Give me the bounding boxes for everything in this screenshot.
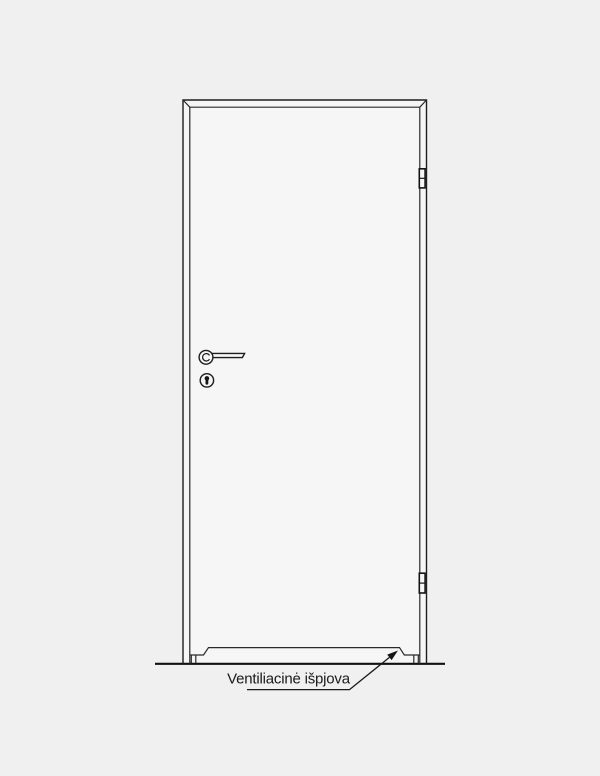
hinge-top [419, 169, 425, 188]
keyhole [200, 374, 213, 387]
hinge-bottom [419, 573, 425, 593]
ventilation-label: Ventiliacinė išpjova [227, 670, 351, 687]
handle-rosette [199, 350, 213, 364]
door-drawing-canvas: Ventiliacinė išpjova [0, 0, 600, 776]
door-elevation-drawing: Ventiliacinė išpjova [0, 0, 600, 776]
keyhole-cylinder-stem [206, 379, 209, 384]
door-leaf-fill [183, 100, 427, 664]
